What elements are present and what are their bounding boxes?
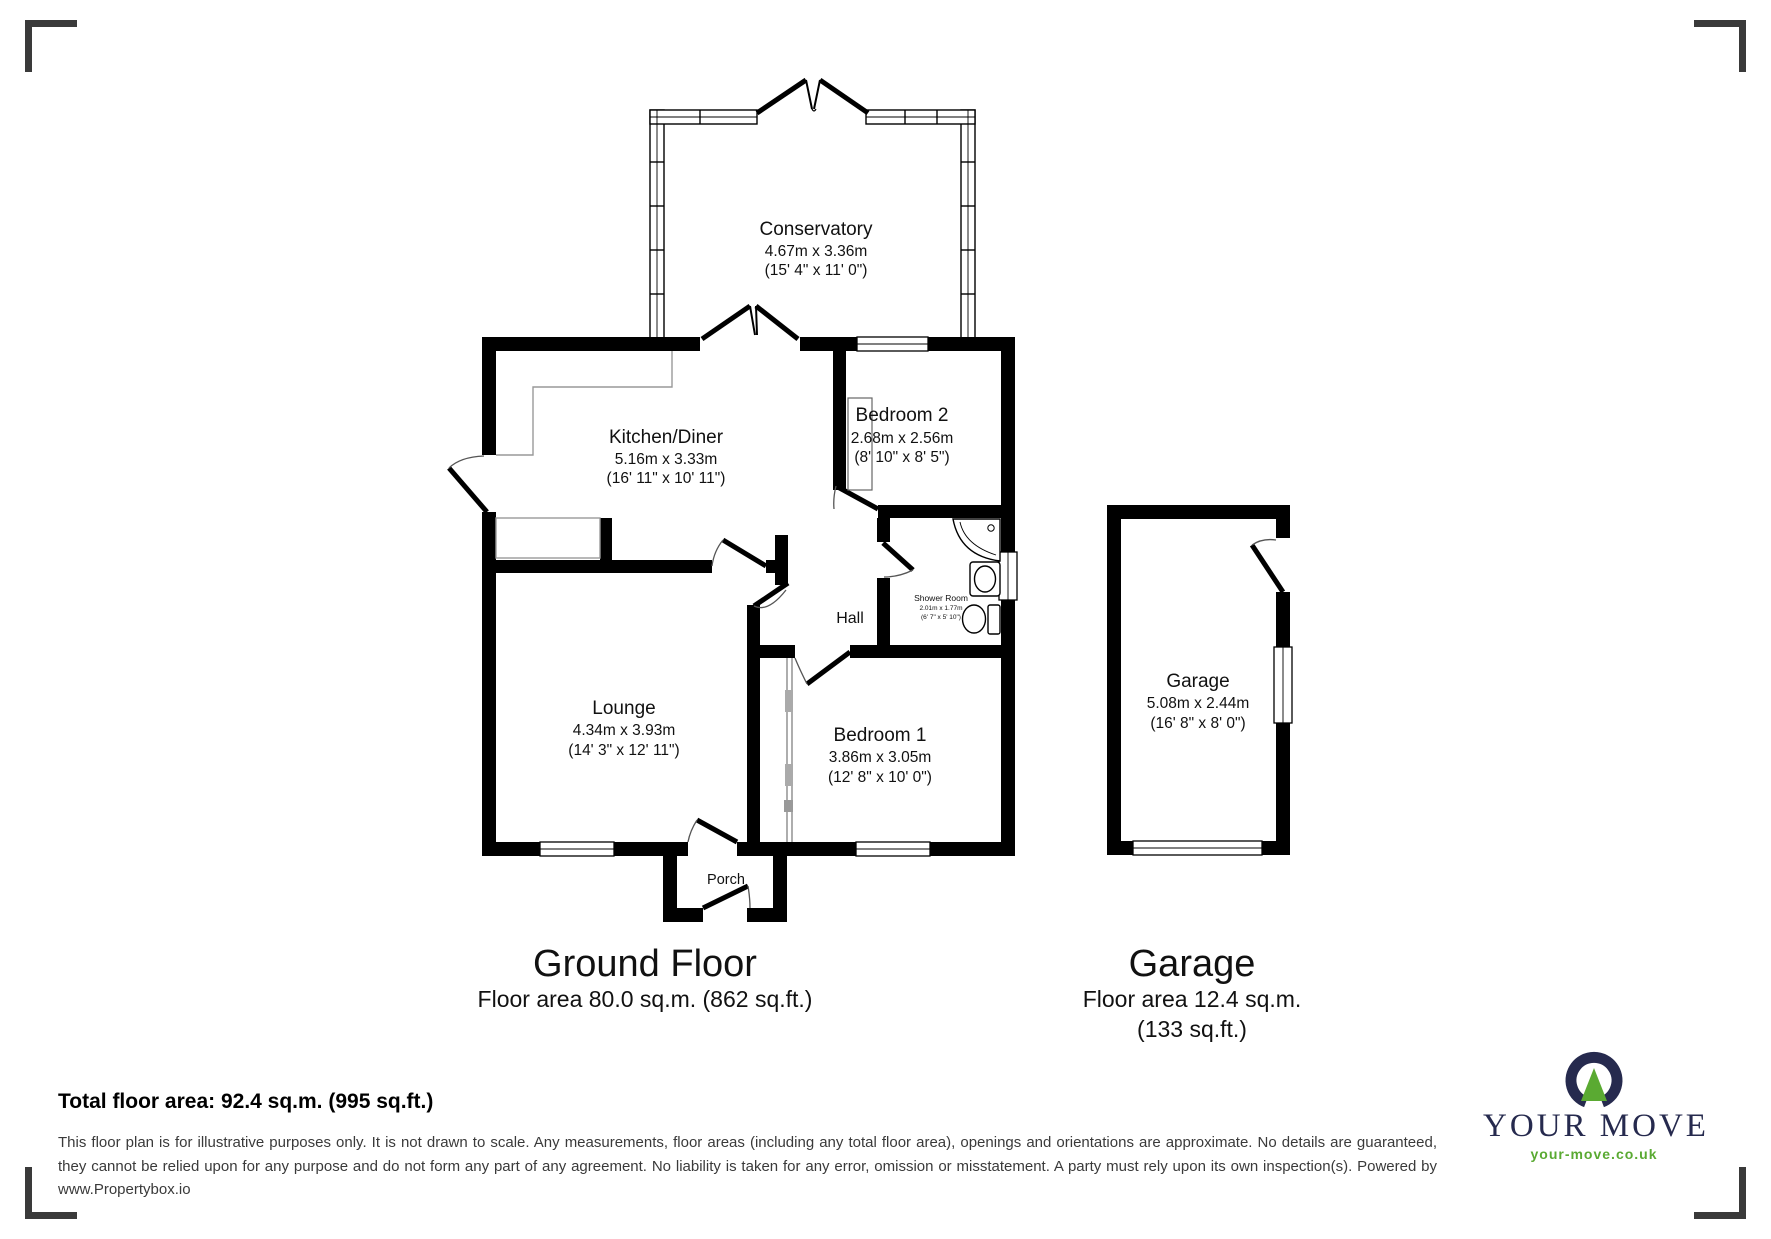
logo-brand-text: YOUR MOVE	[1483, 1108, 1709, 1145]
your-move-logo-mark	[0, 0, 1771, 1239]
logo-url-text: your-move.co.uk	[1530, 1146, 1657, 1162]
logo-triangle-icon	[1581, 1068, 1607, 1101]
floorplan-page: Conservatory 4.67m x 3.36m (15' 4" x 11'…	[0, 0, 1771, 1239]
